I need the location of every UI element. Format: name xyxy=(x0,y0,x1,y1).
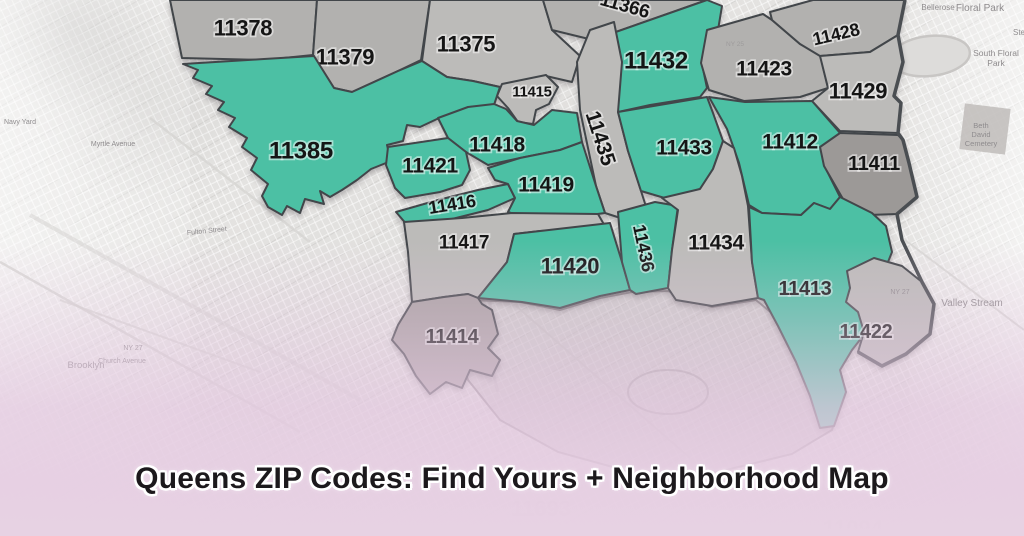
basemap-label: Church Avenue xyxy=(98,358,146,365)
basemap-zip-label: 11693 xyxy=(511,496,571,521)
zip-zone-label: 11434 xyxy=(688,231,744,254)
zip-zone-label: 11379 xyxy=(316,45,375,70)
zip-zone-label: 11420 xyxy=(541,254,600,279)
zip-zone-label: 11413 xyxy=(778,278,831,300)
zip-zone-label: 11419 xyxy=(518,173,574,196)
basemap-label: NY 25 xyxy=(726,41,744,48)
basemap-label: Valley Stream xyxy=(941,298,1003,309)
zip-zone-label: 11432 xyxy=(624,47,688,74)
basemap-label: Myrtle Avenue xyxy=(91,141,135,148)
zip-zone-11378: 11378 xyxy=(170,0,317,60)
zip-zone-label: 11385 xyxy=(269,137,333,164)
zip-zone-label: 11411 xyxy=(848,153,900,175)
zone-shape xyxy=(846,258,934,366)
basemap-label: David xyxy=(971,130,990,139)
basemap-label: Cemetery xyxy=(965,139,998,148)
basemap-label: Fulton Street xyxy=(187,226,228,237)
basemap-label: Beth xyxy=(973,121,988,130)
zip-zone-label: 11417 xyxy=(439,233,489,254)
zip-zone-label: 11378 xyxy=(214,16,273,41)
zip-zone-label: 11433 xyxy=(656,136,712,159)
zip-zone-label: 11415 xyxy=(512,83,551,100)
basemap-label: NY 27 xyxy=(890,289,909,296)
basemap-label: Navy Yard xyxy=(4,119,36,126)
basemap-zip-label: 11094 xyxy=(823,516,884,536)
zip-zone-label: 11429 xyxy=(829,79,888,104)
basemap-label: Bellerose xyxy=(921,3,955,12)
zip-code-map: 11378 11379 11375 11366 11432 11423 xyxy=(0,0,1024,536)
zip-zone-label: 11418 xyxy=(469,133,525,156)
zip-zone-label: 11422 xyxy=(839,321,892,343)
basemap-label: Floral Park xyxy=(956,3,1005,14)
zip-zone-label: 11423 xyxy=(736,57,792,80)
map-title: Queens ZIP Codes: Find Yours + Neighborh… xyxy=(0,462,1024,496)
zip-zone-label: 11412 xyxy=(762,130,818,153)
zip-zone-label: 11375 xyxy=(437,32,496,57)
queens-zip-map-infographic: 11378 11379 11375 11366 11432 11423 xyxy=(0,0,1024,536)
basemap-label: Ste xyxy=(1013,28,1024,37)
basemap-label: NY 27 xyxy=(123,345,142,352)
basemap-label: South Floral xyxy=(973,48,1019,58)
basemap-label: Park xyxy=(987,58,1005,68)
zip-zone-11421: 11421 xyxy=(386,138,470,198)
zip-zone-label: 11414 xyxy=(425,326,479,348)
road-line xyxy=(0,262,300,432)
zip-zone-label: 11421 xyxy=(402,154,458,177)
